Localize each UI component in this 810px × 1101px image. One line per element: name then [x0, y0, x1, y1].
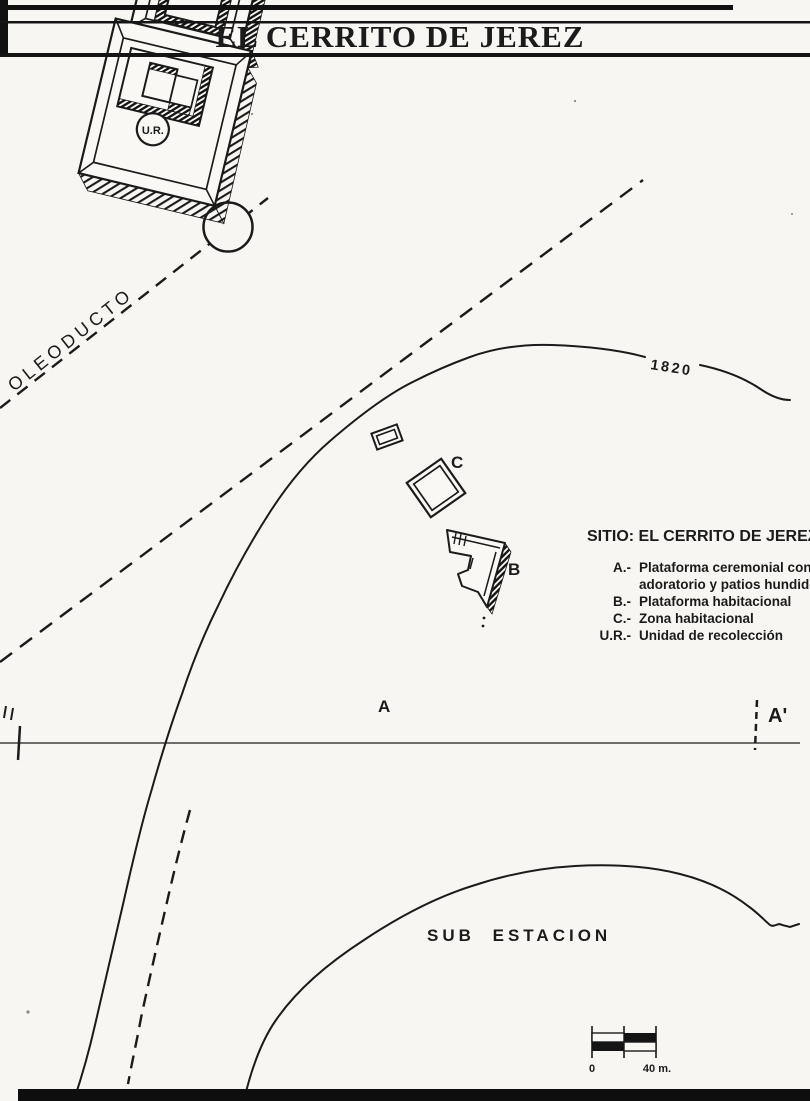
site-plan-page: OLEODUCTO 1820 C B — [0, 0, 810, 1101]
structure-b-label: B — [508, 560, 520, 579]
legend-key-c: C.- — [613, 611, 631, 626]
legend-key-b: B.- — [613, 594, 631, 609]
legend-text-ur: Unidad de recolección — [639, 628, 783, 643]
legend-key-a: A.- — [613, 560, 631, 575]
legend-site-title: SITIO: EL CERRITO DE JEREZ — [587, 528, 810, 545]
legend-text-c: Zona habitacional — [639, 611, 754, 626]
legend-text-b: Plataforma habitacional — [639, 594, 791, 609]
structure-a-label: A — [378, 697, 390, 716]
legend-key-ur: U.R.- — [600, 628, 632, 643]
page-title: EL CERRITO DE JEREZ — [215, 19, 584, 54]
top-edge-bar — [0, 5, 733, 10]
legend-text-a-line1: Plataforma ceremonial con — [639, 560, 810, 575]
structure-c-label: C — [451, 453, 463, 472]
left-edge-bar — [0, 0, 8, 57]
legend-text-a-line2: adoratorio y patios hundido — [639, 577, 810, 592]
site-map-figure: OLEODUCTO 1820 C B — [0, 0, 810, 1101]
section-right-label: A' — [768, 705, 787, 727]
scale-max-label: 40 m. — [643, 1063, 671, 1075]
scale-zero-label: 0 — [589, 1063, 595, 1075]
substation-label: SUB ESTACION — [427, 926, 611, 945]
bottom-edge-bar — [18, 1089, 810, 1101]
ur-label: U.R. — [142, 125, 164, 137]
